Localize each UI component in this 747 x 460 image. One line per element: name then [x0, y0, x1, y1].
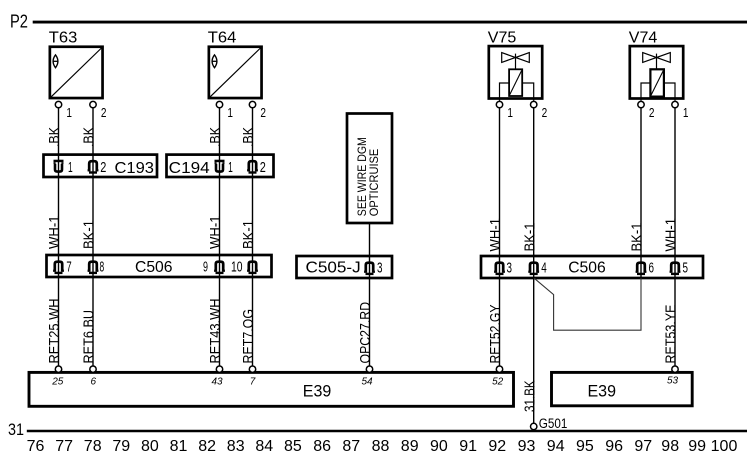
svg-text:T63: T63 — [49, 30, 78, 47]
svg-text:78: 78 — [84, 438, 102, 455]
svg-text:43: 43 — [212, 377, 224, 388]
svg-text:53: 53 — [667, 376, 679, 387]
svg-text:RET43.WH: RET43.WH — [208, 299, 224, 364]
svg-text:V75: V75 — [488, 30, 517, 47]
svg-text:88: 88 — [372, 438, 390, 455]
svg-text:WH-1: WH-1 — [488, 218, 504, 252]
svg-text:6: 6 — [91, 377, 97, 388]
svg-text:52: 52 — [492, 377, 504, 388]
svg-text:77: 77 — [55, 438, 73, 455]
svg-text:3: 3 — [377, 261, 383, 277]
svg-text:84: 84 — [255, 438, 273, 455]
svg-text:C506: C506 — [135, 259, 173, 276]
svg-text:85: 85 — [284, 438, 302, 455]
svg-text:T64: T64 — [208, 30, 237, 47]
svg-text:V74: V74 — [629, 30, 658, 47]
svg-text:82: 82 — [198, 438, 216, 455]
svg-text:BK-1: BK-1 — [241, 220, 257, 249]
svg-text:54: 54 — [362, 377, 374, 388]
svg-text:10: 10 — [231, 260, 243, 276]
svg-text:7: 7 — [66, 260, 71, 276]
svg-text:1: 1 — [66, 106, 72, 120]
svg-text:WH-1: WH-1 — [664, 218, 680, 252]
svg-text:2: 2 — [649, 106, 655, 120]
svg-text:76: 76 — [27, 438, 45, 455]
svg-text:80: 80 — [141, 438, 159, 455]
svg-text:93: 93 — [518, 438, 536, 455]
svg-text:6: 6 — [649, 261, 655, 277]
svg-text:.BK: .BK — [208, 127, 224, 147]
svg-text:P2: P2 — [10, 12, 28, 32]
svg-text:96: 96 — [605, 438, 623, 455]
svg-text:E39: E39 — [303, 382, 332, 400]
svg-text:SEE WIRE DGM: SEE WIRE DGM — [357, 137, 369, 216]
svg-text:99: 99 — [688, 438, 706, 455]
svg-text:C194: C194 — [169, 160, 210, 177]
svg-text:E39: E39 — [588, 382, 617, 400]
svg-text:91: 91 — [459, 438, 477, 455]
svg-text:83: 83 — [227, 438, 245, 455]
svg-text:C193: C193 — [115, 160, 155, 177]
svg-text:3: 3 — [507, 261, 513, 277]
svg-text:OPC27.RD: OPC27.RD — [358, 302, 374, 364]
svg-text:OPTICRUISE: OPTICRUISE — [369, 148, 381, 216]
svg-text:.BK: .BK — [82, 127, 98, 147]
svg-text:WH-1: WH-1 — [47, 216, 63, 250]
svg-text:BK-1: BK-1 — [522, 223, 538, 252]
svg-text:C505-J: C505-J — [306, 260, 361, 277]
svg-text:31.BK: 31.BK — [522, 380, 538, 412]
svg-text:1: 1 — [507, 106, 513, 120]
svg-text:4: 4 — [541, 261, 547, 277]
svg-text:1: 1 — [68, 160, 73, 176]
svg-text:2: 2 — [260, 160, 266, 176]
svg-text:92: 92 — [488, 438, 506, 455]
svg-text:BK-1: BK-1 — [630, 223, 646, 252]
svg-text:79: 79 — [112, 438, 130, 455]
svg-text:94: 94 — [547, 438, 565, 455]
svg-text:RET53.YE: RET53.YE — [664, 304, 680, 363]
svg-text:2: 2 — [260, 106, 266, 120]
svg-text:1: 1 — [683, 106, 689, 120]
svg-text:25: 25 — [51, 377, 64, 388]
svg-text:90: 90 — [430, 438, 448, 455]
svg-text:81: 81 — [170, 438, 188, 455]
svg-text:2: 2 — [100, 160, 106, 176]
svg-text:RET6.BU: RET6.BU — [82, 310, 98, 364]
svg-text:97: 97 — [634, 438, 652, 455]
svg-text:89: 89 — [401, 438, 419, 455]
svg-text:RET7.OG: RET7.OG — [241, 309, 257, 364]
svg-text:BK-1: BK-1 — [82, 220, 98, 249]
svg-text:2: 2 — [542, 106, 548, 120]
svg-text:5: 5 — [683, 261, 689, 277]
svg-text:2: 2 — [101, 106, 107, 120]
svg-text:86: 86 — [313, 438, 331, 455]
svg-text:C506: C506 — [568, 260, 606, 277]
svg-text:7: 7 — [250, 377, 256, 388]
svg-text:31: 31 — [8, 420, 24, 439]
svg-text:100: 100 — [711, 438, 738, 455]
svg-text:98: 98 — [661, 438, 679, 455]
svg-text:RET25.WH: RET25.WH — [47, 299, 63, 364]
svg-text:1: 1 — [228, 160, 233, 176]
svg-text:.BK: .BK — [241, 127, 257, 147]
svg-text:.BK: .BK — [47, 127, 63, 147]
svg-text:95: 95 — [576, 438, 594, 455]
svg-text:RET52.GY: RET52.GY — [488, 304, 504, 363]
svg-text:87: 87 — [342, 438, 360, 455]
svg-text:WH-1: WH-1 — [208, 216, 224, 250]
svg-text:9: 9 — [203, 260, 208, 276]
svg-text:1: 1 — [227, 106, 233, 120]
svg-text:8: 8 — [100, 260, 105, 276]
svg-text:G501: G501 — [539, 416, 568, 431]
